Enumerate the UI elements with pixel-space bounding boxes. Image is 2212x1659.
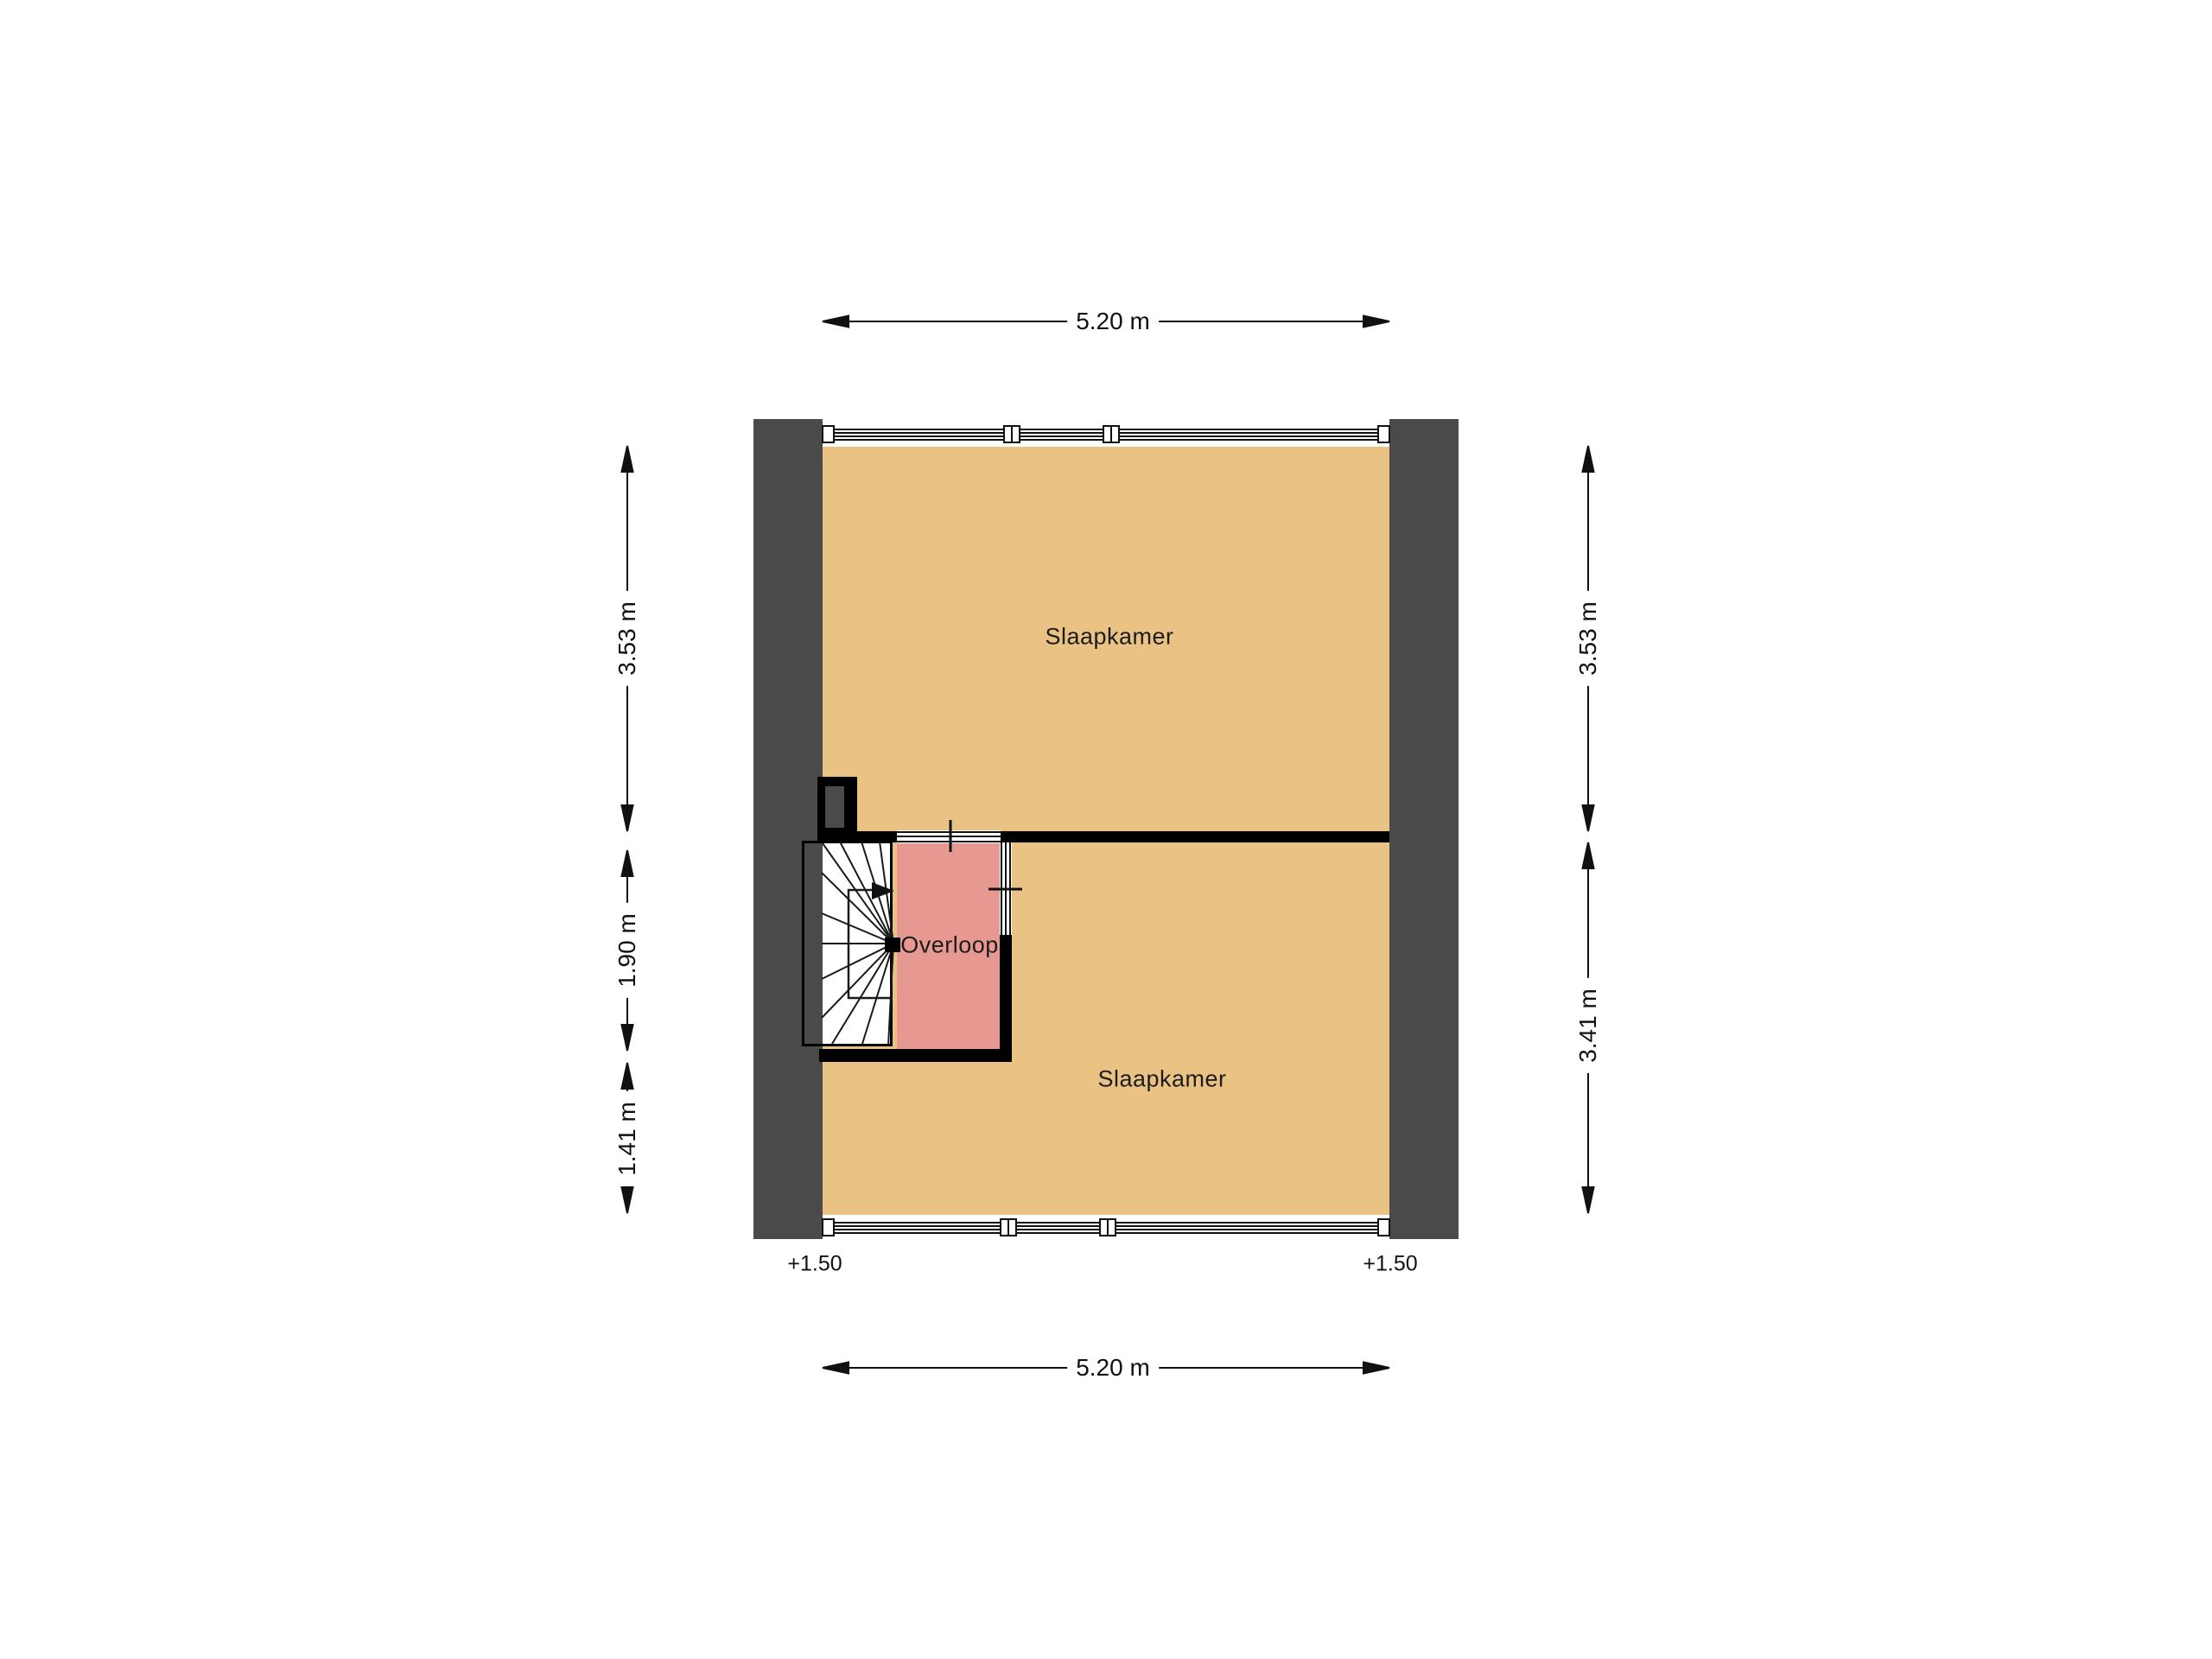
floor-plan-canvas: Slaapkamer Slaapkamer Overloop 5.20 m 5.… xyxy=(0,0,2212,1659)
level-marker-left: +1.50 xyxy=(787,1252,842,1277)
room-label-bedroom-top: Slaapkamer xyxy=(1045,624,1173,651)
dimension-label-bottom: 5.20 m xyxy=(1067,1352,1159,1383)
bottom-window xyxy=(823,1219,1389,1236)
dimension-label-right-lower: 3.41 m xyxy=(1573,978,1604,1073)
dimension-label-left-upper: 3.53 m xyxy=(612,591,643,686)
stair-newel-hub xyxy=(885,938,900,952)
dimension-label-top: 5.20 m xyxy=(1067,306,1159,337)
stair-treads xyxy=(822,842,893,1046)
plan-graphics xyxy=(0,0,2212,1659)
dimension-lines xyxy=(622,316,1594,1374)
dimension-label-left-lower: 1.41 m xyxy=(612,1091,643,1186)
landing-top-door xyxy=(897,830,1001,843)
top-window xyxy=(823,426,1389,442)
level-marker-right: +1.50 xyxy=(1363,1252,1417,1277)
room-label-landing: Overloop xyxy=(900,932,999,959)
room-label-bedroom-bottom: Slaapkamer xyxy=(1097,1066,1226,1093)
dimension-label-right-upper: 3.53 m xyxy=(1573,591,1604,686)
dimension-label-left-middle: 1.90 m xyxy=(612,903,643,998)
stair-direction-arrow-icon xyxy=(872,882,894,899)
